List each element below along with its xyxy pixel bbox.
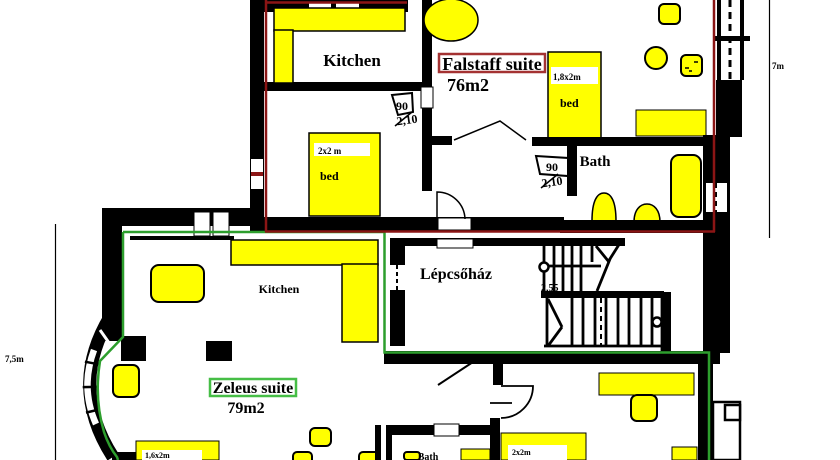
svg-text:Falstaff suite: Falstaff suite [442, 54, 541, 74]
svg-text:bed: bed [320, 169, 339, 183]
svg-text:2,10: 2,10 [541, 174, 564, 191]
svg-text:90: 90 [396, 99, 408, 113]
svg-text:Zeleus suite: Zeleus suite [213, 380, 293, 397]
svg-text:bed: bed [560, 96, 579, 110]
svg-text:Lépcsőház: Lépcsőház [420, 266, 492, 283]
svg-text:2x2 m: 2x2 m [318, 146, 342, 156]
svg-text:7,5m: 7,5m [5, 354, 24, 364]
svg-text:1,6x2m: 1,6x2m [145, 451, 170, 460]
svg-text:1,8x2m: 1,8x2m [553, 72, 581, 82]
svg-text:Bath: Bath [418, 452, 439, 460]
svg-text:2,10: 2,10 [396, 112, 419, 129]
svg-text:2x2m: 2x2m [512, 448, 531, 457]
svg-text:2,55: 2,55 [541, 283, 559, 294]
svg-text:Kitchen: Kitchen [259, 282, 300, 296]
svg-text:90: 90 [546, 160, 558, 174]
svg-text:Kitchen: Kitchen [323, 51, 381, 70]
svg-text:76m2: 76m2 [447, 75, 489, 95]
svg-text:79m2: 79m2 [227, 400, 264, 417]
svg-text:Bath: Bath [580, 154, 612, 170]
svg-text:7m: 7m [772, 61, 785, 71]
